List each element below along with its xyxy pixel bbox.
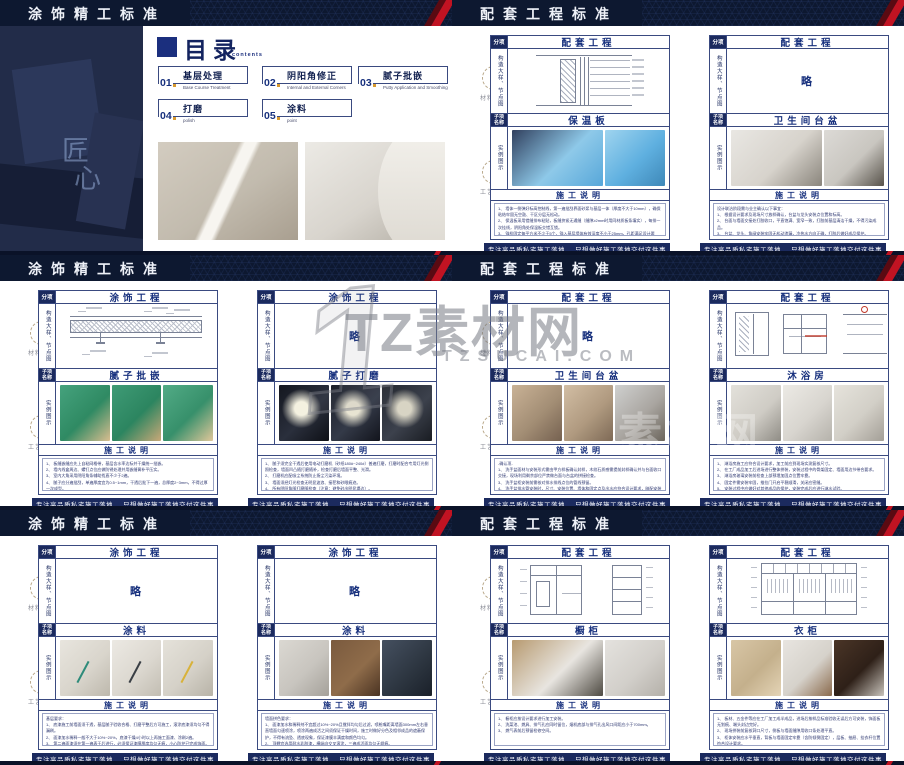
notes-line: 2、 面漆加水稀释一般不大于10%~20%，底漆干燥4小时以上再施工面漆、涂刷2…: [46, 735, 210, 741]
photo-strip: [508, 382, 669, 444]
example-photo: [112, 640, 162, 696]
subitem-title: 腻子打磨: [328, 369, 382, 381]
panel-row-notes: 1、 淋浴房施工应符合设计要求，加工前应到现场实测复核尺寸。2、 在工厂成品加工…: [710, 456, 888, 494]
ward-shelf: [761, 601, 857, 602]
notes-text-box: 墙面拼色要求：1、 面漆加水和稀释剂不宜超过10%~20%且搅拌均匀后过滤，喷枪…: [261, 713, 433, 746]
category-title: 涂饰工程: [328, 291, 382, 303]
diagram-label: 构造大样、节点图: [496, 55, 502, 107]
slide-standard-3[interactable]: 涂饰精工标准材料甄选工艺甄选分项涂饰工程构造大样、节点图子项名称腻子批嵌实例图示…: [0, 255, 452, 510]
example-photo: [783, 640, 833, 696]
subitem-label-cell: 子项名称: [491, 114, 508, 126]
panel-row-diagram: 构造大样、节点图: [491, 559, 669, 624]
example-photo: [60, 640, 110, 696]
hanger-stroke: [787, 579, 788, 593]
leader-line: [590, 60, 630, 61]
rail-line: [70, 337, 202, 338]
subitem-title: 沐浴房: [787, 369, 828, 381]
hanger-stroke: [835, 579, 836, 593]
example-label-cell: 实例图示: [39, 637, 56, 699]
category-title: 配套工程: [561, 36, 615, 48]
category-label: 分项: [493, 38, 504, 46]
category-label: 分项: [260, 548, 271, 556]
wall-hatch: [560, 59, 576, 103]
dim-tick: [520, 593, 527, 594]
toc-item-01[interactable]: 01基层处理Base Course Treatment: [158, 66, 248, 92]
toc-item-subtitle: Internal and External Corners: [287, 85, 346, 90]
example-label: 实例图示: [496, 145, 502, 171]
diagram-label-cell: 构造大样、节点图: [710, 559, 727, 623]
leader-label: [632, 59, 644, 61]
diagram-label-cell: 构造大样、节点图: [258, 559, 275, 623]
toc-item-02[interactable]: 02阴阳角修正Internal and External Corners: [262, 66, 352, 92]
notes-text-box: 1、 墙体一侧弹好标高控制线，第一遍批刮界面砂浆与基层一体（厚度不大于10mm）…: [494, 203, 666, 236]
photo-strip: [727, 382, 888, 444]
category-label-cell: 分项: [39, 546, 56, 558]
panel-row-subitem: 子项名称保温板: [491, 114, 669, 127]
panel-涂料: 分项涂饰工程构造大样、节点图略子项名称涂料实例图示施工说明基层要求：1、 底漆施…: [38, 545, 218, 750]
example-photo: [60, 385, 110, 441]
anchor-wing: [97, 337, 104, 338]
notes-header: 施工说明: [491, 445, 669, 456]
notes-header: 施工说明: [710, 445, 888, 456]
leader-line: [144, 356, 152, 357]
category-label: 分项: [712, 38, 723, 46]
diagram-area: 略: [727, 49, 888, 113]
red-tick: [886, 761, 893, 765]
hanger-stroke: [775, 579, 776, 593]
dim-tick: [861, 577, 867, 578]
panel-row-photos: 实例图示: [491, 127, 669, 190]
photos-cell: [727, 127, 888, 189]
photo-light: [382, 385, 432, 441]
hanger-stroke: [839, 579, 840, 593]
drawing-1-line: [753, 314, 754, 354]
example-photo: [163, 640, 213, 696]
panel-row-category: 分项涂饰工程: [39, 291, 217, 304]
slide-standard-5[interactable]: 涂饰精工标准材料甄选工艺甄选分项涂饰工程构造大样、节点图略子项名称涂料实例图示施…: [0, 510, 452, 765]
shelf-line: [612, 577, 642, 578]
panel-腻子批嵌: 分项涂饰工程构造大样、节点图子项名称腻子批嵌实例图示施工说明1、 板缝嵌缝应先上…: [38, 290, 218, 495]
example-photo: [605, 130, 665, 186]
toc-item-title: 打磨: [183, 102, 203, 115]
subitem-label-cell: 子项名称: [39, 369, 56, 381]
slide-standard-2[interactable]: 配套工程标准材料甄选工艺甄选分项配套工程构造大样、节点图子项名称保温板实例图示施…: [452, 0, 904, 255]
toc-item-subtitle: Base Course Treatment: [183, 85, 231, 90]
example-photo: [331, 640, 381, 696]
dim-tick: [646, 587, 653, 588]
toc-item-title: 基层处理: [183, 69, 223, 82]
example-photo: [279, 640, 329, 696]
notes-line: 3、 柜体安装应水平垂直，背板与墙面固定牢靠（含防倾倒固定），层板、抽屉、挂衣杆…: [717, 735, 881, 746]
notes-text-box: 基层要求：1、 底漆施工前墙面须干透，基层腻子验收合格、打磨平整后方可施工，滚涂…: [42, 713, 214, 746]
toc-item-number: 05: [263, 110, 277, 122]
panel-沐浴房: 分项配套工程构造大样、节点图子项名称沐浴房实例图示施工说明1、 淋浴房施工应符合…: [709, 290, 889, 495]
photo-roller-handle: [180, 661, 193, 683]
ward-top: [761, 573, 857, 574]
example-label: 实例图示: [715, 400, 721, 426]
toc-worker-photo: 匠心: [0, 26, 143, 251]
orange-tick-icon: [277, 117, 280, 120]
category-title-cell: 涂饰工程: [56, 291, 217, 303]
panel-row-subitem: 子项名称沐浴房: [710, 369, 888, 382]
notes-line: 2、 顶棚宜选用耐水乳胶漆，横纵向交叉滚涂，三遍成活面均匀无辊痕。: [265, 741, 429, 746]
panel-row-notes-header: 施工说明: [39, 445, 217, 456]
dim-tick: [751, 587, 757, 588]
example-photo: [731, 640, 781, 696]
notes-line: 1、 底漆施工前墙面须干透，基层腻子验收合格、打磨平整后方可施工，滚涂底漆须均匀…: [46, 722, 210, 734]
drawing-2: [783, 314, 827, 354]
slide-title: 涂饰精工标准: [28, 514, 166, 534]
dim-tick: [751, 567, 757, 568]
dim-tick: [520, 581, 527, 582]
toc-item-subtitle: Putty Application and Smoothing: [383, 85, 448, 90]
example-photo: [731, 130, 822, 186]
red-tick: [434, 761, 441, 765]
panel-row-subitem: 子项名称橱柜: [491, 624, 669, 637]
hexagon-pattern: [642, 255, 904, 281]
example-photo: [279, 385, 329, 441]
diagram-area: [508, 49, 669, 113]
notes-line: 1、 面漆加水和稀释剂不宜超过10%~20%且搅拌均匀后过滤，喷枪嘴距离墙面30…: [265, 722, 429, 741]
example-label-cell: 实例图示: [491, 127, 508, 189]
diagram-label: 构造大样、节点图: [44, 565, 50, 617]
layer-line: [584, 57, 585, 105]
slide-header-band: 配套工程标准: [452, 0, 904, 26]
ward-col: [825, 573, 826, 615]
subitem-label: 子项名称: [42, 369, 52, 382]
subitem-title-cell: 保温板: [508, 114, 669, 126]
example-label-cell: 实例图示: [491, 382, 508, 444]
ward-top-div: [833, 563, 834, 573]
category-title-cell: 涂饰工程: [275, 546, 436, 558]
leader-line: [590, 88, 630, 89]
hanger-stroke: [811, 579, 812, 593]
example-label: 实例图示: [263, 655, 269, 681]
panel-row-notes: 墙面拼色要求：1、 面漆加水和稀释剂不宜超过10%~20%且搅拌均匀后过滤，喷枪…: [258, 711, 436, 749]
rail-line: [536, 55, 632, 56]
panel-row-category: 分项涂饰工程: [258, 291, 436, 304]
diagram-label: 构造大样、节点图: [496, 565, 502, 617]
subitem-title-cell: 涂料: [56, 624, 217, 636]
category-title: 配套工程: [780, 546, 834, 558]
dim-tick: [751, 607, 757, 608]
subitem-label-cell: 子项名称: [39, 624, 56, 636]
diagram-label-cell: 构造大样、节点图: [710, 49, 727, 113]
drawing-2-line: [783, 328, 827, 329]
notes-line: 1、 墙体一侧弹好标高控制线，第一遍批刮界面砂浆与基层一体（厚度不大于10mm）…: [498, 206, 662, 218]
example-label: 实例图示: [44, 400, 50, 426]
rail-line: [536, 105, 632, 106]
diagram-omitted-text: 略: [130, 583, 143, 599]
panel-row-photos: 实例图示: [258, 382, 436, 445]
leader-label: [632, 66, 644, 68]
hanger-stroke: [767, 579, 768, 593]
subitem-label-cell: 子项名称: [491, 369, 508, 381]
panel-row-notes-header: 施工说明: [258, 445, 436, 456]
subitem-title: 保温板: [568, 114, 609, 126]
slide-header-band: 配套工程标准: [452, 510, 904, 536]
diagram-label: 构造大样、节点图: [263, 310, 269, 362]
panel-橱柜: 分项配套工程构造大样、节点图子项名称橱柜实例图示施工说明1、 橱柜应按设计要求进…: [490, 545, 670, 750]
panel-row-notes: -确认项-1、 洗手盆面材与安装形式需由甲方样板确认封样，木纹石质感需提前封样确…: [491, 456, 669, 494]
subitem-title-cell: 涂料: [275, 624, 436, 636]
slide-standard-4[interactable]: 配套工程标准材料甄选工艺甄选分项配套工程构造大样、节点图略子项名称卫生间台盆实例…: [452, 255, 904, 510]
panel-row-photos: 实例图示: [710, 127, 888, 190]
panel-row-diagram: 构造大样、节点图: [710, 559, 888, 624]
toc-item-title: 涂料: [287, 102, 307, 115]
hanger-stroke: [831, 579, 832, 593]
photo-roller-handle: [128, 661, 141, 683]
notes-line: 3、 台盆、龙头、角阀安装牢固无松动渗漏，冷热水方向正确，打胶后做好成品保护。: [717, 231, 881, 236]
leader-line: [144, 311, 152, 312]
leader-line: [166, 313, 174, 314]
orange-tick-icon: [373, 84, 376, 87]
subitem-title-cell: 沐浴房: [727, 369, 888, 381]
diagram-omitted-text: 略: [349, 328, 362, 344]
diagram-area: [727, 559, 888, 623]
subitem-label: 子项名称: [42, 624, 52, 637]
leader-line: [590, 67, 630, 68]
subitem-label: 子项名称: [713, 114, 723, 127]
drawing-3-note: [805, 335, 827, 337]
example-photo: [331, 385, 381, 441]
diagram-label-cell: 构造大样、节点图: [491, 304, 508, 368]
category-label-cell: 分项: [491, 291, 508, 303]
category-label: 分项: [712, 293, 723, 301]
diagram-omitted-text: 略: [349, 583, 362, 599]
slide-header-band: 涂饰精工标准: [0, 510, 452, 536]
slide-bottom-strip: [0, 761, 452, 765]
contents-square-icon: [157, 37, 177, 57]
example-label: 实例图示: [44, 655, 50, 681]
diagram-label-cell: 构造大样、节点图: [258, 304, 275, 368]
diagram-label-cell: 构造大样、节点图: [491, 49, 508, 113]
notes-header: 施工说明: [491, 700, 669, 711]
category-title: 涂饰工程: [109, 546, 163, 558]
panel-row-notes-header: 施工说明: [491, 700, 669, 711]
drawing-3-line: [847, 324, 883, 325]
slide-title: 涂饰精工标准: [28, 4, 166, 24]
ceiling-band: [70, 320, 202, 333]
hexagon-pattern: [642, 0, 904, 26]
panel-row-photos: 实例图示: [258, 637, 436, 700]
example-photo: [834, 640, 884, 696]
subitem-title-cell: 衣柜: [727, 624, 888, 636]
toc-item-03[interactable]: 03腻子批嵌Putty Application and Smoothing: [358, 66, 448, 92]
notes-header: 施工说明: [258, 445, 436, 456]
subitem-title: 衣柜: [794, 624, 821, 636]
subitem-label-cell: 子项名称: [491, 624, 508, 636]
diagram-label: 构造大样、节点图: [715, 310, 721, 362]
photo-strip: [727, 127, 888, 189]
subitem-label: 子项名称: [261, 624, 271, 637]
hanger-stroke: [819, 579, 820, 593]
notes-header: 施工说明: [710, 190, 888, 201]
hanger-stroke: [783, 579, 784, 593]
panel-row-diagram: 构造大样、节点图略: [710, 49, 888, 114]
example-photo: [512, 130, 603, 186]
toc-item-05[interactable]: 05涂料point: [262, 99, 352, 125]
category-label: 分项: [493, 548, 504, 556]
category-title-cell: 配套工程: [727, 36, 888, 48]
subitem-label-cell: 子项名称: [258, 369, 275, 381]
panel-row-photos: 实例图示: [39, 382, 217, 445]
subitem-title: 涂料: [123, 624, 150, 636]
notes-line: 1、 腻子须完全干透后使用电动打磨机（砂纸180#~240#）普遍打磨，打磨时配…: [265, 461, 429, 473]
shelf-line: [612, 601, 642, 602]
notes-line: 3、 第二遍面漆须在第一遍表干后进行，必须保证漆膜厚度均匀无痕，小心防护已完成饰…: [46, 741, 210, 746]
photos-cell: [508, 382, 669, 444]
photo-light: [331, 385, 381, 441]
panel-row-diagram: 构造大样、节点图略: [258, 304, 436, 369]
diagram-area: [56, 304, 217, 368]
notes-line: 4、 所有阴阳角随打磨随检查（注意：避免砂出明显塌边）。: [265, 486, 429, 491]
panel-row-notes: 1、 腻子须完全干透后使用电动打磨机（砂纸180#~240#）普遍打磨，打磨时配…: [258, 456, 436, 494]
slide-toc[interactable]: 涂饰精工标准匠心目录contents01基层处理Base Course Trea…: [0, 0, 452, 255]
dim-tick: [861, 597, 867, 598]
category-title-cell: 涂饰工程: [56, 546, 217, 558]
anchor-head: [96, 342, 105, 344]
diagram-area: 略: [275, 304, 436, 368]
leader-label: [152, 352, 168, 354]
category-title: 配套工程: [561, 546, 615, 558]
notes-header: 施工说明: [491, 190, 669, 201]
subitem-title-cell: 橱柜: [508, 624, 669, 636]
toc-item-number: 02: [263, 77, 277, 89]
category-label-cell: 分项: [491, 546, 508, 558]
anchor-head: [156, 342, 165, 344]
orange-tick-icon: [277, 84, 280, 87]
hanger-stroke: [815, 579, 816, 593]
panel-row-diagram: 构造大样、节点图略: [491, 304, 669, 369]
orange-tick-icon: [173, 84, 176, 87]
photo-strip: [56, 637, 217, 699]
panel-row-notes: 1、 墙体一侧弹好标高控制线，第一遍批刮界面砂浆与基层一体（厚度不大于10mm）…: [491, 201, 669, 239]
diagram-label: 构造大样、节点图: [496, 310, 502, 362]
photo-strip: [727, 637, 888, 699]
hanger-stroke: [799, 579, 800, 593]
category-title-cell: 涂饰工程: [275, 291, 436, 303]
example-label: 实例图示: [715, 145, 721, 171]
photos-cell: [727, 637, 888, 699]
slide-standard-6[interactable]: 配套工程标准材料甄选工艺甄选分项配套工程构造大样、节点图子项名称橱柜实例图示施工…: [452, 510, 904, 765]
panel-row-photos: 实例图示: [491, 637, 669, 700]
notes-text-box: -确认项-1、 洗手盆面材与安装形式需由甲方样板确认封样，木纹石质感需提前封样确…: [494, 458, 666, 491]
toc-item-title: 腻子批嵌: [383, 69, 423, 82]
example-photo: [824, 130, 884, 186]
panel-保温板: 分项配套工程构造大样、节点图子项名称保温板实例图示施工说明1、 墙体一侧弹好标高…: [490, 35, 670, 240]
example-label-cell: 实例图示: [258, 637, 275, 699]
diagram-label-cell: 构造大样、节点图: [491, 559, 508, 623]
leader-label: [632, 94, 644, 96]
toc-item-04[interactable]: 04打磨polish: [158, 99, 248, 125]
subitem-title-cell: 卫生间台盆: [508, 369, 669, 381]
category-label: 分项: [41, 293, 52, 301]
panel-衣柜: 分项配套工程构造大样、节点图子项名称衣柜实例图示施工说明1、 板材、五金件等应在…: [709, 545, 889, 750]
panel-row-photos: 实例图示: [39, 637, 217, 700]
photos-cell: [56, 382, 217, 444]
panel-row-category: 分项配套工程: [491, 36, 669, 49]
subitem-label: 子项名称: [494, 114, 504, 127]
category-title-cell: 配套工程: [727, 546, 888, 558]
dim-tick: [861, 607, 867, 608]
panel-row-photos: 实例图示: [710, 637, 888, 700]
panel-row-category: 分项配套工程: [710, 291, 888, 304]
example-label-cell: 实例图示: [491, 637, 508, 699]
leader-line: [590, 95, 630, 96]
slide-header-band: 涂饰精工标准: [0, 0, 452, 26]
example-photo: [112, 385, 162, 441]
leader-label: [174, 309, 190, 311]
notes-text-box: 1、 板缝嵌缝应先上自粘网格带，基层含水率达标并干燥统一批嵌。2、 墙内线盒周边…: [42, 458, 214, 491]
leader-label: [152, 307, 168, 309]
category-title-cell: 配套工程: [508, 36, 669, 48]
photo-strip: [508, 637, 669, 699]
category-label: 分项: [41, 548, 52, 556]
toc-item-number: 01: [159, 77, 173, 89]
drawing-2-line: [801, 314, 802, 354]
cab-line: [562, 593, 582, 594]
subitem-title: 涂料: [342, 624, 369, 636]
subitem-label: 子项名称: [261, 369, 271, 382]
diagram-label: 构造大样、节点图: [715, 55, 721, 107]
example-photo: [731, 385, 781, 441]
category-label-cell: 分项: [491, 36, 508, 48]
ward-top-div: [773, 563, 774, 573]
dim-tick: [861, 587, 867, 588]
subitem-label: 子项名称: [494, 369, 504, 382]
example-label-cell: 实例图示: [258, 382, 275, 444]
slide-title: 配套工程标准: [480, 4, 618, 24]
example-label: 实例图示: [496, 400, 502, 426]
photo-beam: [158, 142, 298, 240]
example-photo: [512, 640, 603, 696]
dim-tick: [861, 567, 867, 568]
panel-row-notes-header: 施工说明: [710, 445, 888, 456]
leader-line: [590, 81, 630, 82]
example-photo: [382, 640, 432, 696]
dim-tick: [646, 597, 653, 598]
panel-row-subitem: 子项名称卫生间台盆: [710, 114, 888, 127]
panel-row-subitem: 子项名称涂料: [39, 624, 217, 637]
notes-line: 5、 安装过程中应做好对其他成品的保护，安装完成后应进行淋水试验。: [717, 486, 881, 491]
layer-line: [588, 57, 589, 105]
diagram-omitted-text: 略: [582, 328, 595, 344]
ward-top-div: [785, 563, 786, 573]
slide-title: 配套工程标准: [480, 259, 618, 279]
panel-row-subitem: 子项名称衣柜: [710, 624, 888, 637]
hexagon-pattern: [190, 0, 452, 26]
hexagon-pattern: [190, 255, 452, 281]
panel-row-category: 分项配套工程: [491, 546, 669, 559]
subitem-label-cell: 子项名称: [710, 624, 727, 636]
panel-row-notes-header: 施工说明: [710, 700, 888, 711]
drawing-3-line: [847, 334, 883, 335]
ward-top-div: [821, 563, 822, 573]
subitem-title: 橱柜: [575, 624, 602, 636]
example-label: 实例图示: [715, 655, 721, 681]
toc-item-number: 04: [159, 110, 173, 122]
dim-tick: [751, 597, 757, 598]
notes-line: 3、 燃气表前后预留检修空间。: [498, 728, 662, 734]
craftsmanship-mark: 匠心: [62, 138, 101, 195]
contents-title: 目录: [184, 31, 242, 65]
photos-cell: [508, 637, 669, 699]
subitem-title-cell: 腻子打磨: [275, 369, 436, 381]
dim-tick: [520, 569, 527, 570]
panel-row-notes-header: 施工说明: [39, 700, 217, 711]
example-photo: [783, 385, 833, 441]
